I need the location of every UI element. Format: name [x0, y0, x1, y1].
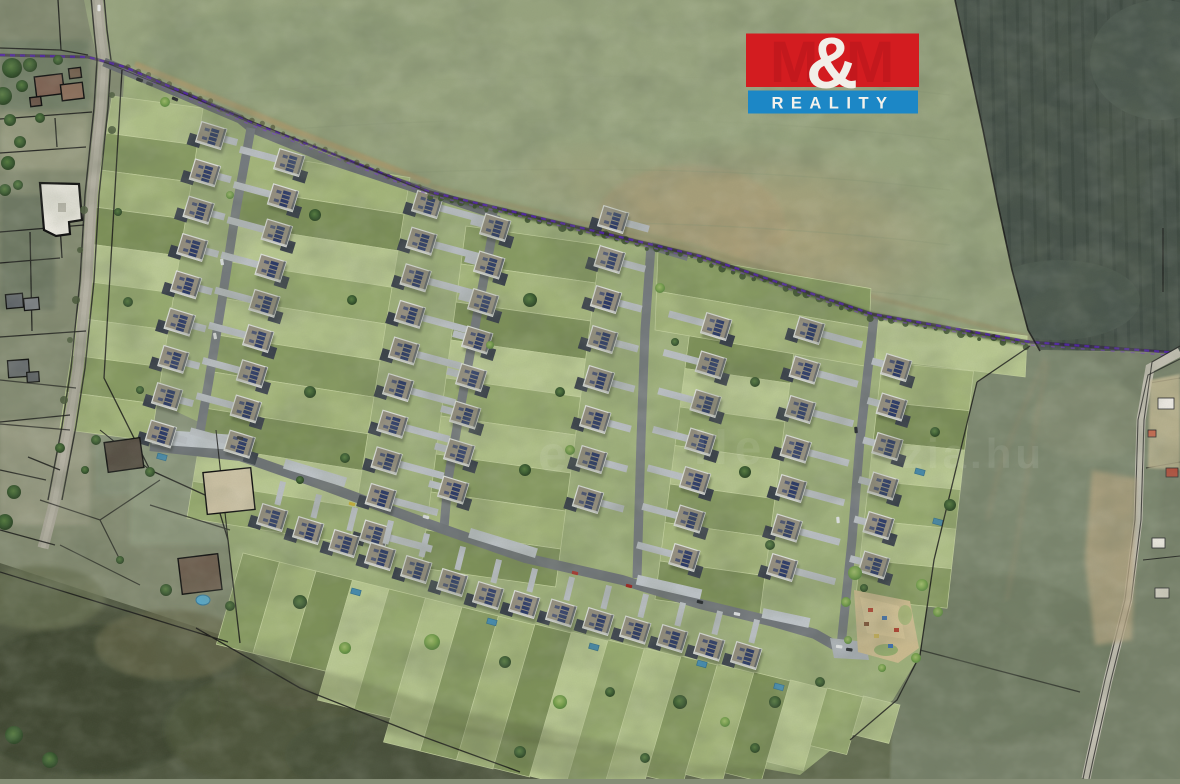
svg-text:REALITY: REALITY [771, 95, 894, 113]
